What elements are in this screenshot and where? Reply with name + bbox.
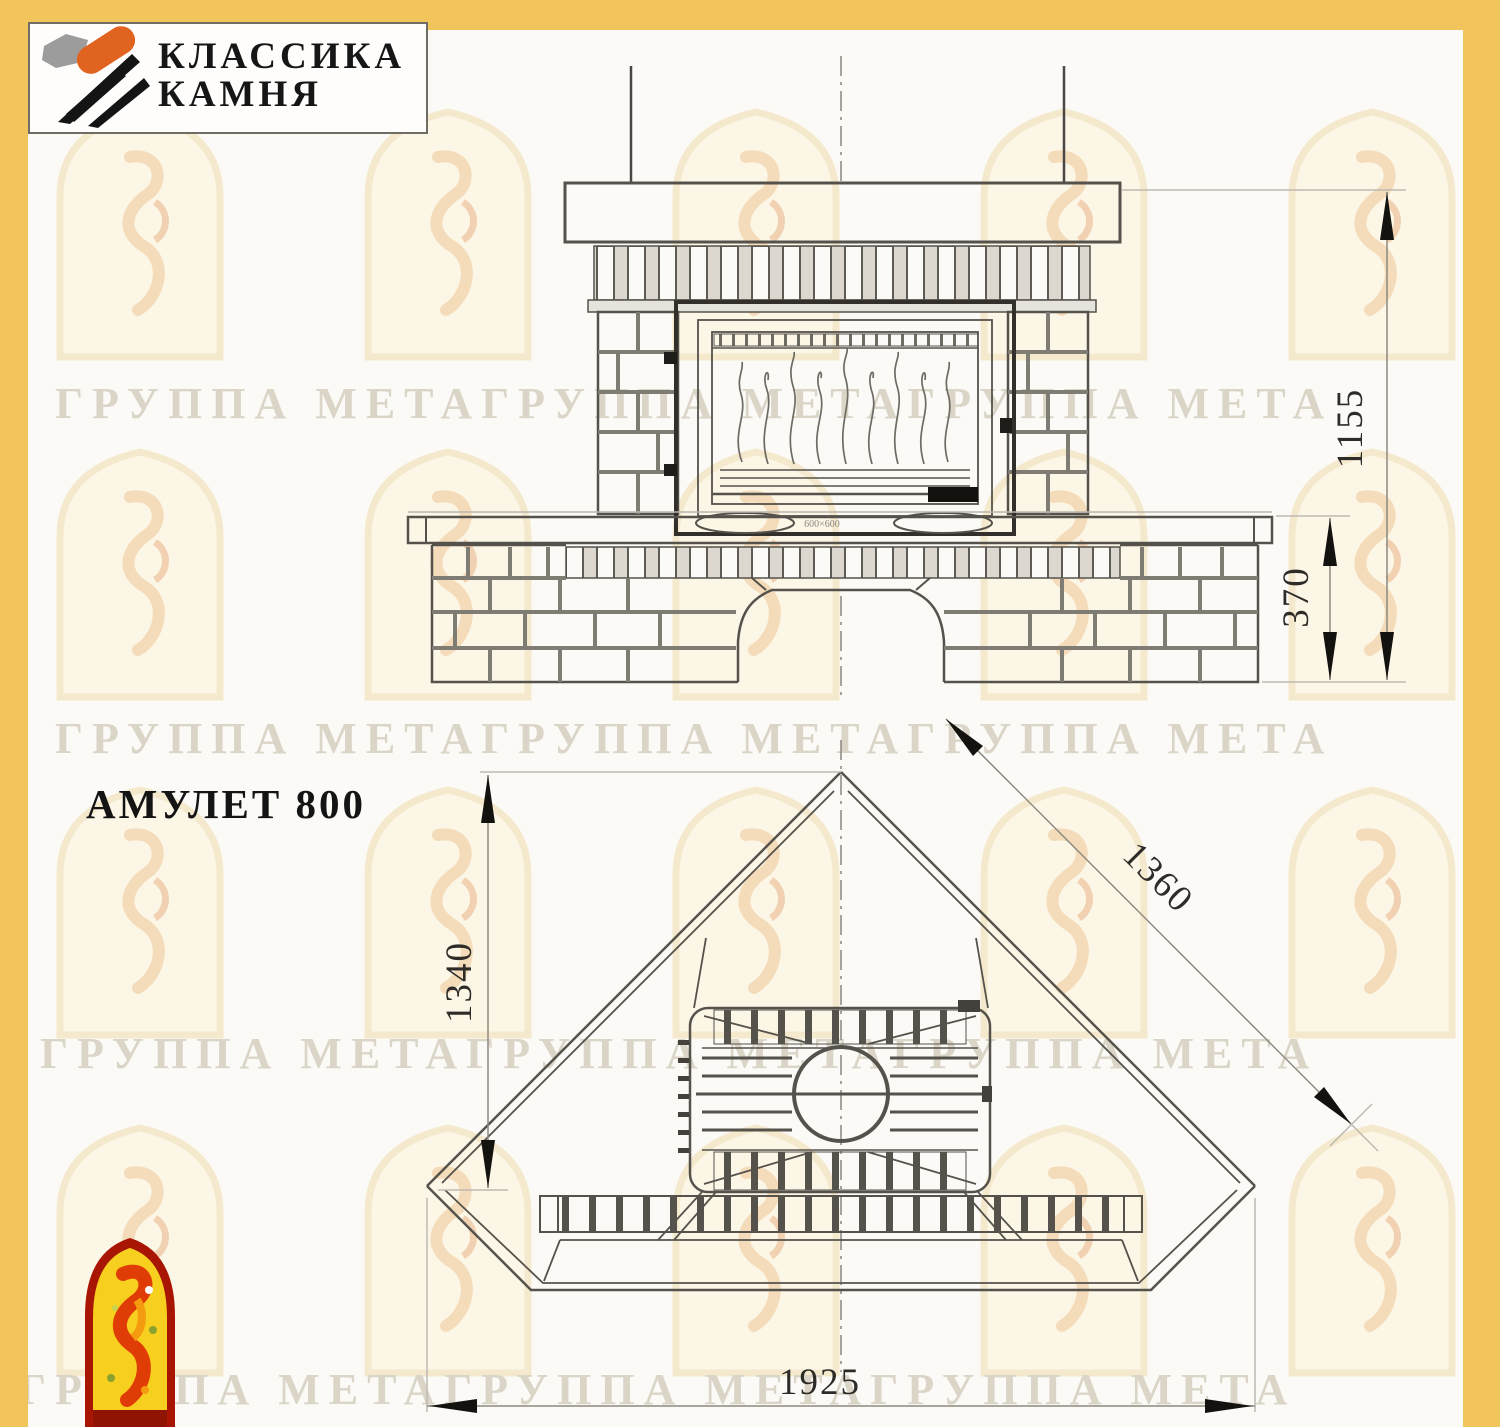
fireplace-technical-drawing: 600×600 — [0, 0, 1500, 1427]
plan-view — [427, 740, 1255, 1372]
dentil-band-upper — [594, 246, 1090, 300]
bench-slab — [408, 512, 1272, 543]
mascot-emblem — [85, 1238, 175, 1427]
company-logo: КЛАССИКА КАМНЯ — [28, 22, 428, 134]
firebox-insert: 600×600 — [664, 302, 1014, 534]
flames — [738, 348, 950, 464]
plan-insert — [678, 1000, 992, 1192]
scan-border-right — [1463, 0, 1500, 1427]
front-view: 600×600 — [408, 56, 1272, 700]
logo-line1: КЛАССИКА — [158, 38, 405, 76]
dim-label-plan-depth: 1340 — [439, 941, 480, 1023]
mascot-base — [93, 1410, 167, 1427]
dentil-band-lower — [566, 547, 1120, 578]
base — [432, 545, 1258, 682]
hinge-lower — [664, 464, 677, 476]
firebox-top-vents — [714, 334, 978, 346]
model-title: АМУЛЕТ 800 — [86, 780, 366, 828]
dim-label-base-height: 370 — [1276, 566, 1317, 628]
dim-label-plan-width: 1925 — [779, 1362, 861, 1403]
dim-label-total-height: 1155 — [1330, 388, 1371, 469]
insert-marking: 600×600 — [804, 519, 840, 530]
plan-bench-hatch — [558, 1196, 1124, 1232]
scan-border-left — [0, 0, 28, 1427]
chimney-pipes — [631, 66, 1064, 183]
grate-lines — [720, 470, 970, 486]
orange-stone — [72, 26, 141, 79]
handle — [928, 487, 978, 502]
logo-line2: КАМНЯ — [158, 76, 405, 114]
hinge-upper — [664, 352, 677, 364]
mantel-shelf — [565, 183, 1120, 242]
latch — [1000, 418, 1012, 433]
stone-logo-icon — [36, 26, 161, 132]
plan-insert-top-ticks — [714, 1010, 966, 1044]
plan-insert-bottom-ticks — [714, 1152, 966, 1190]
dim-label-plan-diagonal: 1360 — [1115, 834, 1202, 921]
